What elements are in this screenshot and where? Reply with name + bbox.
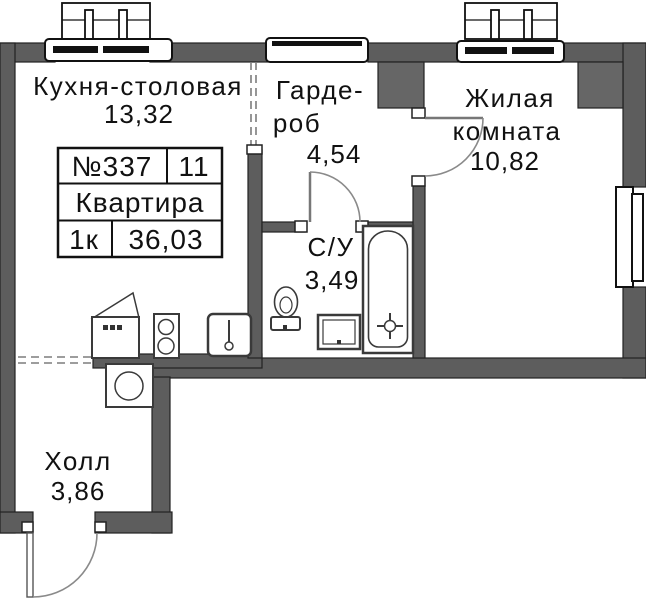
kitchen-area: 13,32 [104, 99, 174, 129]
wall-segment [413, 186, 425, 358]
floor-plan-drawing: №337 11 Квартира 1к 36,03 Кухня-столовая… [0, 0, 646, 600]
door-jamb [295, 221, 307, 232]
window-glass-line [512, 47, 554, 54]
niche-line [272, 41, 362, 46]
bathroom-door [310, 172, 360, 222]
balcony-railing-icon [62, 3, 150, 39]
side-window [616, 187, 643, 287]
toilet-bowl [280, 297, 292, 313]
window-glass-line [465, 47, 507, 54]
toilet-button [283, 325, 287, 330]
kitchen-fixtures [92, 293, 251, 407]
railing-post [524, 10, 532, 39]
wall-segment [152, 377, 170, 533]
door-swing-arc [33, 533, 97, 597]
hall-area: 3,86 [51, 476, 106, 506]
entrance-door [27, 533, 97, 597]
door-jamb [95, 522, 106, 532]
fridge-door-flap [93, 293, 139, 318]
door-jamb [412, 176, 425, 186]
total-area: 36,03 [128, 224, 203, 255]
wardrobe-label-line1: Гарде- [276, 75, 364, 105]
bathroom-area: 3,49 [305, 265, 360, 295]
apartment-info-table: №337 11 Квартира 1к 36,03 [58, 148, 222, 257]
bathtub-drain [385, 321, 396, 332]
kitchen-window [45, 3, 172, 61]
fridge-handle [103, 325, 108, 330]
pillar [578, 62, 623, 108]
door-jamb [412, 108, 425, 118]
kitchen-label: Кухня-столовая [33, 71, 243, 101]
floor-plan-canvas: №337 11 Квартира 1к 36,03 Кухня-столовая… [0, 0, 646, 600]
pillar [378, 62, 424, 108]
stove-burner [159, 320, 174, 335]
room-labels: Кухня-столовая 13,32 Гарде- роб 4,54 Жил… [33, 71, 561, 506]
railing-post [491, 10, 499, 39]
fridge-handle [117, 325, 122, 330]
bathroom-label: С/У [307, 232, 354, 262]
fridge-icon [92, 317, 139, 358]
fridge-handle [110, 325, 115, 330]
wall-segment [368, 43, 465, 62]
rooms-count: 1к [69, 224, 99, 255]
washing-machine-drum [115, 372, 143, 400]
railing-post [85, 10, 93, 39]
wall-segment [0, 43, 15, 533]
door-swing-arc [310, 172, 360, 222]
hall-label: Холл [44, 446, 111, 476]
wardrobe-wall-niche [266, 38, 368, 62]
door-leaf [27, 533, 33, 597]
window-frame [616, 187, 633, 287]
living-room-label-line2: комната [453, 116, 562, 146]
window-glass-line [103, 46, 149, 53]
section-number: 11 [178, 151, 209, 182]
stove-burner [158, 338, 174, 354]
living-room-label-line1: Жилая [465, 83, 555, 113]
living-room-area: 10,82 [470, 146, 540, 176]
sink-drain [337, 340, 341, 344]
balcony-railing-icon [465, 3, 557, 39]
wall-segment [623, 43, 646, 187]
door-jamb [22, 522, 33, 532]
faucet-base [225, 342, 233, 350]
living-room-window [457, 3, 564, 62]
apartment-type-label: Квартира [75, 187, 204, 218]
window-glass-line [53, 46, 98, 53]
wardrobe-label-line2: роб [273, 108, 321, 138]
railing-post [119, 10, 127, 39]
wall-end-cap [247, 145, 262, 154]
wardrobe-area: 4,54 [307, 139, 362, 169]
window-leaf [632, 194, 643, 281]
apartment-number: №337 [72, 151, 153, 182]
